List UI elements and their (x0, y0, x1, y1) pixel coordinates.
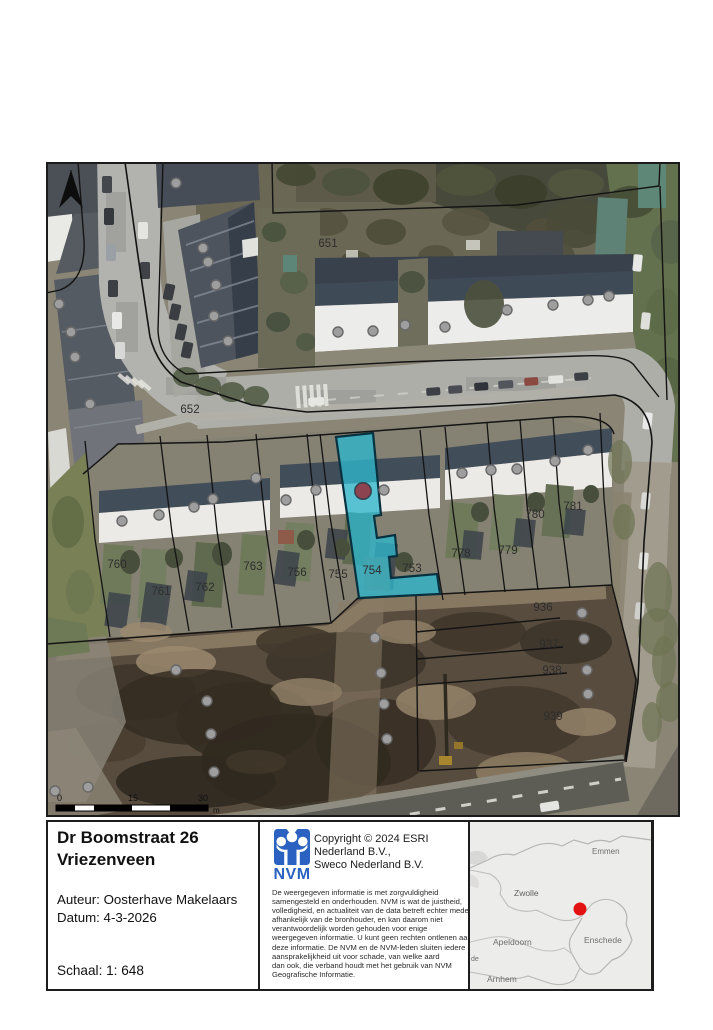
svg-text:938: 938 (542, 665, 561, 677)
svg-text:780: 780 (525, 509, 544, 521)
svg-text:781: 781 (563, 501, 582, 513)
svg-text:763: 763 (243, 561, 262, 573)
svg-text:936: 936 (533, 602, 552, 614)
svg-text:754: 754 (362, 565, 382, 577)
svg-text:Apeldoorn: Apeldoorn (493, 937, 532, 947)
svg-text:762: 762 (195, 582, 214, 594)
svg-text:de: de (471, 956, 479, 963)
svg-text:779: 779 (498, 545, 517, 557)
svg-text:15: 15 (128, 793, 138, 803)
svg-text:Enschede: Enschede (584, 935, 622, 945)
svg-text:755: 755 (328, 569, 347, 581)
svg-text:756: 756 (287, 567, 306, 579)
svg-text:778: 778 (451, 548, 470, 560)
svg-text:760: 760 (107, 559, 126, 571)
svg-text:937: 937 (539, 639, 558, 651)
svg-text:0: 0 (57, 793, 62, 803)
svg-text:939: 939 (543, 711, 562, 723)
svg-text:30: 30 (198, 793, 208, 803)
svg-text:651: 651 (318, 238, 337, 250)
svg-text:753: 753 (402, 563, 421, 575)
svg-text:Emmen: Emmen (592, 847, 620, 856)
svg-text:NVM: NVM (273, 866, 310, 880)
svg-text:761: 761 (151, 586, 170, 598)
svg-text:652: 652 (180, 404, 199, 416)
svg-text:Zwolle: Zwolle (514, 888, 539, 898)
svg-text:m: m (213, 806, 220, 815)
svg-text:Arnhem: Arnhem (487, 974, 517, 984)
